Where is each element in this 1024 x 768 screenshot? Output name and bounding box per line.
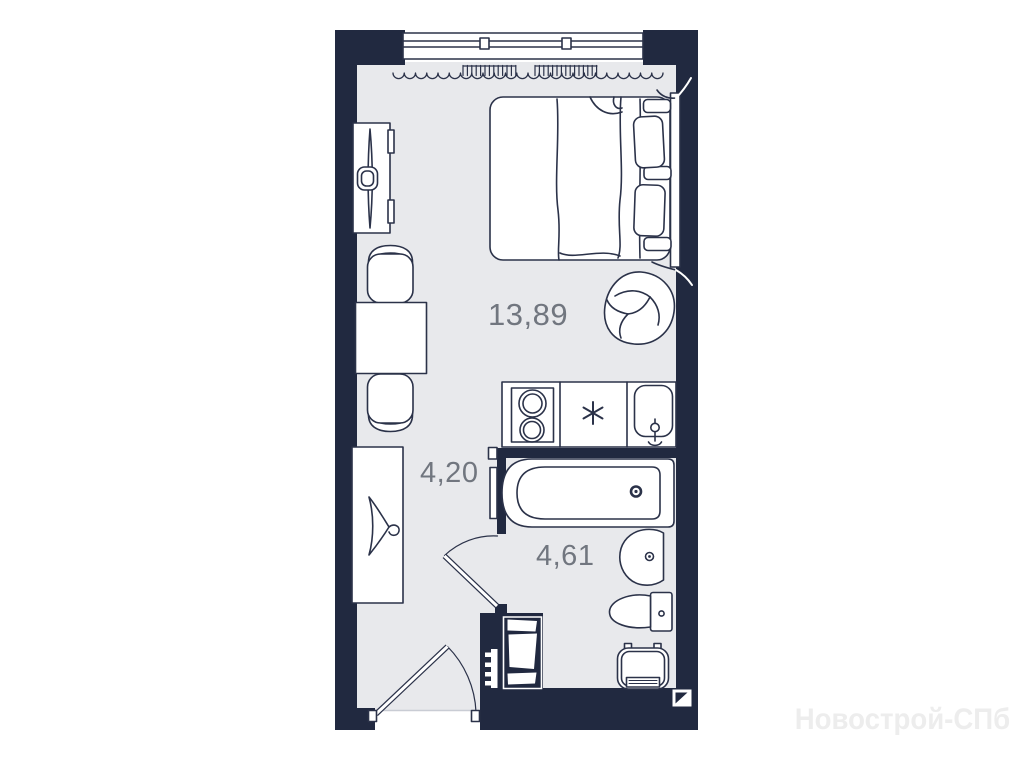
wardrobe-icon [352,447,403,603]
chair-icon [368,374,414,432]
washing-machine-icon [618,644,669,690]
logo-mark-icon [673,690,692,707]
vent-shaft-icon [485,617,542,689]
area-label-hallway: 4,20 [420,457,478,490]
watermark: Новострой-СПб [795,703,1010,737]
toilet-icon [609,593,672,632]
area-label-living: 13,89 [488,297,568,333]
hob-icon [512,388,554,442]
area-label-bathroom: 4,61 [536,540,594,573]
chair-icon [368,246,414,304]
plan-linework [0,0,1024,768]
washbasin-icon [620,529,664,585]
bathtub-icon [502,459,674,527]
entrance-door-icon [369,647,480,722]
dining-table-icon [356,303,427,374]
tv-stand-icon [353,123,394,233]
kitchen-counter [502,382,676,447]
window-icon [403,33,643,59]
double-bed-icon [490,78,692,285]
floor-plan: 13,89 4,20 4,61 Новострой-СПб [0,0,1024,768]
curtain-icon [393,73,663,79]
pouf-icon [605,272,675,344]
